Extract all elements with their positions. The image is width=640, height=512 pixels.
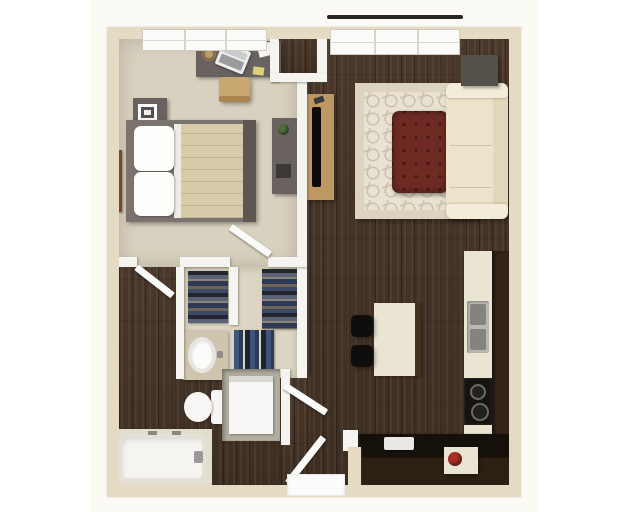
entry-threshold bbox=[287, 474, 345, 496]
window-mullion bbox=[184, 30, 186, 50]
bedroom-window bbox=[142, 29, 267, 51]
exterior-wall-frame bbox=[107, 27, 521, 497]
window-rail bbox=[143, 40, 266, 41]
window-mullion bbox=[374, 30, 376, 54]
window-rail bbox=[331, 42, 459, 43]
window-mullion bbox=[225, 30, 227, 50]
window-mullion bbox=[417, 30, 419, 54]
living-room-window bbox=[330, 29, 460, 55]
floor-plan-image bbox=[0, 0, 640, 512]
balcony-ledge-line bbox=[327, 15, 463, 19]
